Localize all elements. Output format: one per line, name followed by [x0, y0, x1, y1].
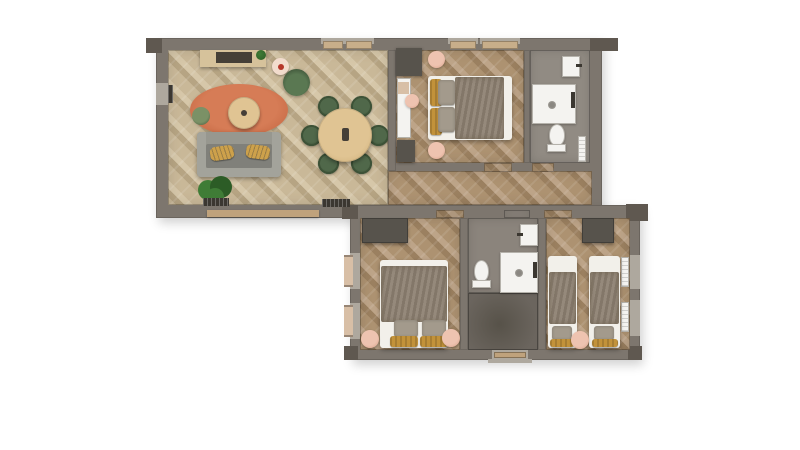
bathroom1-sink-tap: [576, 64, 582, 67]
bed1-duvet: [455, 77, 504, 139]
bedroom1-bathroom1-wall: [524, 50, 530, 163]
bed2-pillow-left: [394, 320, 418, 337]
bedroom2-nightstand-right: [442, 329, 460, 347]
dining-centerpiece: [342, 128, 349, 141]
coffee-table-decor: [241, 110, 247, 116]
living-radiator-b: [322, 199, 350, 207]
sofa-cushion-right: [245, 144, 271, 161]
entry-threshold: [488, 359, 532, 363]
bedroom2-double-bed: [380, 260, 448, 348]
window-bedroom3-b: [630, 300, 640, 336]
bedroom2-wardrobe: [362, 218, 408, 243]
bed1-pillow-bottom: [438, 107, 455, 132]
hallway-floor: [388, 171, 592, 205]
bedroom1-corner-cabinet: [396, 48, 422, 76]
bedroom3-window-radiator-a: [621, 257, 629, 287]
counter-plant: [256, 50, 266, 60]
bathroom2-toilet-tank: [472, 280, 491, 288]
bedroom-2-door-opening: [436, 210, 464, 218]
sofa-arm-left: [197, 132, 206, 177]
bathroom2-sink-tap: [517, 233, 523, 236]
eave-top-right: [590, 38, 618, 51]
bedroom1-storage-unit: [397, 140, 415, 162]
bed3a-duvet: [549, 272, 576, 324]
bathroom1-towel-radiator: [578, 136, 586, 162]
window-sill-living-a: [323, 41, 343, 49]
bedroom3-shared-nightstand: [571, 331, 589, 349]
lounge-chair: [283, 69, 310, 96]
bathroom1-shower-fixture: [571, 92, 575, 108]
tv-console-inset: [216, 52, 252, 63]
bedroom2-window-radiator-b: [344, 305, 353, 337]
bedroom2-bathroom2-wall: [460, 218, 468, 350]
bedroom2-window-radiator-a: [344, 255, 353, 287]
bed2-duvet: [381, 266, 447, 322]
bedroom3-single-bed-right: [589, 256, 620, 348]
bedroom1-nightstand-top: [428, 51, 445, 68]
sofa: [197, 132, 281, 177]
floor-pouf: [192, 107, 210, 125]
eave-top-left: [146, 38, 162, 53]
bathroom2-shower-fixture: [533, 262, 537, 278]
bed2-bolster-left: [390, 336, 418, 347]
window-sill-living-b: [346, 41, 372, 49]
window-sill-bedroom1-a: [450, 41, 476, 49]
bed3b-pillow: [594, 326, 614, 340]
bedroom1-desk-stool: [405, 94, 419, 108]
bed3b-bolster: [592, 339, 618, 347]
bedroom2-nightstand-left: [361, 330, 379, 348]
bedroom1-nightstand-bottom: [428, 142, 445, 159]
window-bench: [207, 210, 319, 217]
bedroom1-desk-tray: [398, 82, 409, 94]
bathroom1-toilet-tank: [547, 144, 566, 152]
living-bedroom1-wall: [388, 50, 396, 171]
bed3b-duvet: [590, 272, 619, 324]
floor-plan-canvas: [0, 0, 800, 450]
bathroom-1-door-opening: [532, 163, 554, 172]
entry-hall-floor: [468, 293, 538, 350]
eave-bottom-left: [344, 346, 358, 360]
bed3a-pillow: [552, 326, 572, 340]
bedroom3-wardrobe: [582, 218, 614, 243]
window-bedroom3-a: [630, 255, 640, 289]
bedroom3-window-radiator-b: [621, 302, 629, 332]
bed1-pillow-top: [438, 80, 455, 105]
living-radiator-a: [203, 198, 229, 206]
bathroom2-bedroom3-wall: [538, 218, 546, 350]
sofa-arm-right: [272, 132, 281, 177]
living-left-radiator: [168, 85, 173, 103]
red-vase: [278, 64, 284, 70]
eave-bottom-right: [628, 346, 642, 360]
window-sill-bedroom1-b: [482, 41, 518, 49]
bathroom1-shower-drain: [548, 101, 556, 109]
bedroom1-double-bed: [428, 76, 512, 140]
bathroom-2-door-opening: [504, 210, 530, 218]
window-living-left: [156, 83, 168, 105]
bathroom1-toilet-bowl: [549, 124, 565, 146]
bedroom-1-door-opening: [484, 163, 512, 172]
entry-door: [494, 352, 526, 358]
bedroom-3-door-opening: [544, 210, 572, 218]
bathroom2-toilet-bowl: [474, 260, 489, 282]
bathroom2-shower-drain: [515, 269, 523, 277]
